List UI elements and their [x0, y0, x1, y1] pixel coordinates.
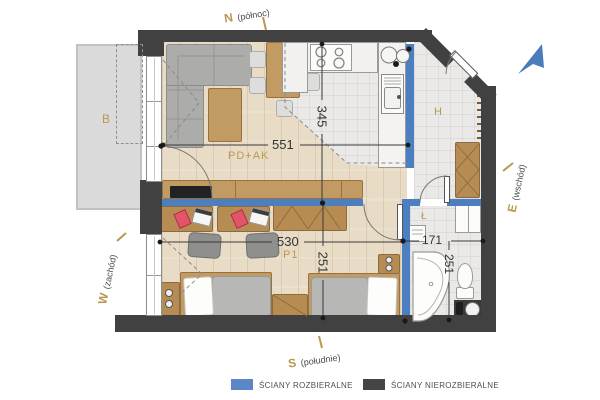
compass-north-letter: N	[223, 10, 234, 25]
dresser-knobs	[166, 290, 173, 308]
dim-bedroom-width: 530	[277, 234, 299, 249]
entrance-door-arc	[446, 52, 456, 74]
floor-plan: B PD+AK P1 H Ł 551 345 530 171 251 251 N…	[0, 0, 600, 400]
legend-demountable-swatch	[231, 379, 253, 390]
dim-living-width: 551	[272, 137, 294, 152]
room-label-bedroom: P1	[283, 249, 298, 261]
dim-bathroom-depth: 251	[442, 248, 456, 280]
sofa-cushion-lines	[166, 44, 244, 140]
dim-bedroom-depth: 251	[316, 247, 331, 279]
room-label-living: PD+AK	[228, 150, 269, 162]
hall-wardrobe-hatch	[456, 144, 479, 196]
bedroom-door-arc	[364, 204, 400, 240]
balcony-door-arc	[161, 146, 212, 198]
room-label-balcony: B	[102, 112, 111, 126]
legend-non-demountable-swatch	[363, 379, 385, 390]
dim-kitchen-depth: 345	[315, 101, 330, 133]
legend-demountable-label: ŚCIANY ROZBIERALNE	[259, 381, 353, 390]
bedroom-wardrobe-hatch	[276, 206, 340, 229]
room-label-hall: H	[434, 106, 443, 118]
room-label-bathroom: Ł	[421, 211, 428, 222]
compass-south-word: (południe)	[300, 352, 341, 367]
nightstand-diagonal	[273, 295, 307, 316]
compass-south-letter: S	[287, 356, 297, 371]
bathroom-door-arc	[420, 176, 447, 203]
shelf-knobs	[386, 257, 392, 271]
entrance-arrow-icon	[518, 44, 544, 74]
stove-burners	[316, 47, 344, 68]
corner-double-sink	[381, 47, 410, 67]
compass-north-word: (północ)	[237, 7, 271, 22]
legend-non-demountable-label: ŚCIANY NIEROZBIERALNE	[391, 381, 499, 390]
window-opening-dashed	[163, 238, 202, 310]
compass-ticks	[117, 17, 513, 348]
dim-bathroom-width: 171	[422, 233, 442, 247]
window-opening-dashed	[163, 60, 199, 146]
kitchen-sink	[382, 75, 404, 114]
